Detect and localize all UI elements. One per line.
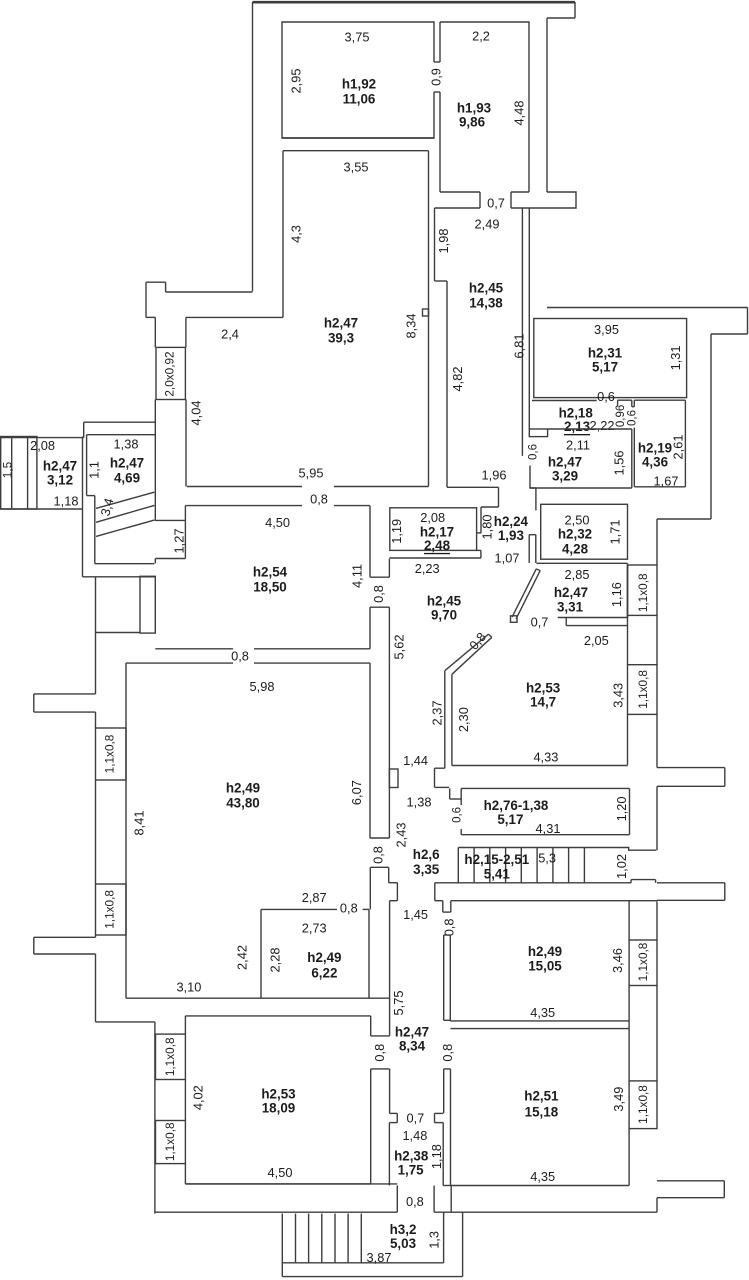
svg-text:1,1x0,8: 1,1x0,8 [103, 890, 117, 929]
svg-text:1,20: 1,20 [614, 796, 629, 821]
svg-text:h2,76-1,38: h2,76-1,38 [484, 798, 549, 813]
svg-text:0,8: 0,8 [310, 492, 328, 507]
svg-text:6,81: 6,81 [512, 334, 527, 359]
svg-text:h2,47: h2,47 [324, 316, 358, 331]
svg-text:3,46: 3,46 [610, 948, 625, 973]
svg-text:6,22: 6,22 [311, 965, 337, 980]
svg-text:2,22: 2,22 [590, 418, 615, 433]
svg-text:h2,47: h2,47 [43, 459, 77, 474]
svg-text:4,11: 4,11 [350, 564, 365, 588]
svg-text:3,31: 3,31 [557, 600, 584, 615]
svg-text:8,34: 8,34 [399, 1039, 426, 1054]
svg-text:1,45: 1,45 [403, 907, 428, 922]
svg-text:h2,49: h2,49 [528, 944, 562, 959]
svg-text:3,35: 3,35 [413, 862, 440, 877]
svg-text:h2,19: h2,19 [638, 441, 672, 456]
svg-text:15,05: 15,05 [528, 958, 562, 973]
svg-text:4,33: 4,33 [533, 750, 558, 765]
svg-text:2,48: 2,48 [424, 538, 451, 553]
svg-text:2,08: 2,08 [420, 510, 445, 525]
svg-text:1,38: 1,38 [114, 437, 139, 452]
svg-text:1,75: 1,75 [398, 1163, 425, 1178]
svg-text:3,49: 3,49 [611, 1087, 626, 1112]
svg-text:15,18: 15,18 [525, 1104, 559, 1119]
svg-text:1,56: 1,56 [612, 451, 627, 476]
svg-text:2,85: 2,85 [565, 567, 590, 582]
svg-text:0,8: 0,8 [370, 846, 385, 864]
svg-text:h2,53: h2,53 [261, 1087, 295, 1102]
svg-text:0,9: 0,9 [429, 68, 444, 86]
svg-text:h2,53: h2,53 [526, 681, 560, 696]
svg-text:h2,54: h2,54 [253, 565, 288, 580]
svg-text:5,75: 5,75 [391, 991, 406, 1016]
svg-text:0,6: 0,6 [451, 807, 463, 823]
svg-text:18,50: 18,50 [253, 580, 287, 595]
svg-text:1,1: 1,1 [87, 461, 102, 479]
svg-text:4,35: 4,35 [530, 1005, 555, 1020]
svg-text:h2,47: h2,47 [395, 1025, 429, 1040]
svg-text:43,80: 43,80 [226, 796, 260, 811]
svg-text:11,06: 11,06 [343, 92, 376, 107]
svg-text:5,62: 5,62 [392, 635, 407, 660]
svg-text:1,18: 1,18 [54, 494, 79, 509]
svg-text:2,50: 2,50 [565, 513, 590, 528]
svg-text:2,43: 2,43 [394, 823, 409, 848]
svg-text:5,17: 5,17 [497, 812, 523, 827]
svg-text:0,8: 0,8 [372, 1044, 387, 1062]
svg-text:1,07: 1,07 [495, 551, 520, 566]
svg-text:3,12: 3,12 [47, 473, 73, 488]
svg-text:2,0x0,92: 2,0x0,92 [163, 351, 177, 396]
svg-text:h2,24: h2,24 [494, 514, 529, 529]
svg-text:h2,47: h2,47 [110, 456, 144, 471]
svg-text:5,17: 5,17 [592, 360, 618, 375]
svg-text:0,7: 0,7 [407, 1111, 425, 1126]
svg-text:4,28: 4,28 [562, 542, 589, 557]
svg-text:8,41: 8,41 [132, 811, 147, 836]
svg-text:4,3: 4,3 [289, 225, 304, 243]
svg-text:18,09: 18,09 [262, 1101, 296, 1116]
svg-text:2,61: 2,61 [671, 435, 686, 460]
svg-text:1,1x0,8: 1,1x0,8 [636, 573, 650, 612]
svg-text:4,02: 4,02 [191, 1085, 206, 1110]
svg-text:39,3: 39,3 [328, 331, 354, 346]
svg-text:4,50: 4,50 [265, 515, 290, 530]
svg-text:0,8: 0,8 [441, 919, 456, 937]
svg-text:0,8: 0,8 [371, 585, 386, 603]
svg-text:1,1x0,8: 1,1x0,8 [636, 1085, 650, 1124]
svg-text:h2,15-2,51: h2,15-2,51 [464, 852, 529, 867]
svg-text:2,08: 2,08 [30, 438, 55, 453]
svg-text:3,55: 3,55 [344, 160, 369, 175]
svg-text:1,96: 1,96 [482, 468, 507, 483]
svg-text:1,1x0,8: 1,1x0,8 [163, 1122, 177, 1161]
svg-text:14,38: 14,38 [469, 296, 503, 311]
svg-text:h2,47: h2,47 [548, 455, 582, 470]
svg-text:3,95: 3,95 [594, 322, 619, 337]
svg-text:1,1x0,8: 1,1x0,8 [103, 734, 117, 773]
svg-text:2,28: 2,28 [268, 948, 283, 973]
svg-text:3,75: 3,75 [345, 30, 370, 45]
svg-text:3,43: 3,43 [610, 683, 625, 708]
svg-text:2,37: 2,37 [430, 701, 445, 726]
svg-text:h2,45: h2,45 [469, 281, 504, 296]
svg-text:6,07: 6,07 [349, 780, 364, 805]
svg-text:1,1x0,8: 1,1x0,8 [636, 942, 650, 981]
svg-text:4,50: 4,50 [268, 1165, 293, 1180]
svg-text:h2,32: h2,32 [558, 527, 592, 542]
svg-text:h2,51: h2,51 [524, 1088, 559, 1103]
svg-text:h1,92: h1,92 [342, 77, 376, 92]
svg-text:3,87: 3,87 [367, 1250, 392, 1265]
svg-text:h2,38: h2,38 [394, 1149, 429, 1164]
svg-text:1,27: 1,27 [172, 529, 187, 554]
svg-text:9,86: 9,86 [459, 115, 485, 130]
svg-text:h2,49: h2,49 [226, 781, 260, 796]
svg-text:1,67: 1,67 [654, 474, 679, 489]
svg-text:h2,47: h2,47 [554, 585, 588, 600]
svg-text:4,35: 4,35 [530, 1169, 555, 1184]
svg-text:2,95: 2,95 [289, 69, 304, 94]
svg-text:1,18: 1,18 [429, 1144, 444, 1169]
svg-text:0,8: 0,8 [231, 649, 249, 664]
svg-text:0,8: 0,8 [440, 1044, 455, 1062]
svg-text:1,16: 1,16 [609, 582, 624, 607]
svg-text:h2,6: h2,6 [413, 847, 440, 862]
svg-text:2,73: 2,73 [302, 921, 327, 936]
svg-text:0,8: 0,8 [406, 1194, 424, 1209]
svg-text:2,42: 2,42 [235, 945, 250, 970]
svg-text:1,5: 1,5 [0, 461, 14, 478]
svg-text:4,31: 4,31 [536, 821, 561, 836]
svg-text:2,30: 2,30 [456, 707, 471, 732]
svg-text:1,80: 1,80 [480, 515, 495, 540]
svg-text:5,03: 5,03 [390, 1236, 416, 1251]
svg-text:3,10: 3,10 [176, 980, 201, 995]
svg-text:4,04: 4,04 [189, 401, 204, 426]
svg-text:5,3: 5,3 [538, 851, 556, 866]
svg-text:h2,31: h2,31 [588, 346, 623, 361]
svg-text:1,19: 1,19 [389, 519, 404, 544]
svg-text:1,38: 1,38 [407, 795, 432, 810]
svg-text:9,70: 9,70 [431, 608, 457, 623]
svg-text:0,7: 0,7 [531, 614, 549, 629]
svg-text:4,69: 4,69 [114, 471, 140, 486]
svg-text:0,7: 0,7 [487, 196, 505, 211]
svg-text:0,8: 0,8 [340, 901, 358, 916]
svg-text:h2,49: h2,49 [307, 950, 341, 965]
svg-text:0,6: 0,6 [597, 389, 615, 404]
svg-text:2,05: 2,05 [584, 633, 609, 648]
svg-text:0,6: 0,6 [627, 410, 639, 426]
svg-text:3,29: 3,29 [552, 469, 578, 484]
svg-text:1,3: 1,3 [426, 1231, 441, 1249]
svg-text:h1,93: h1,93 [457, 101, 491, 116]
svg-text:2,4: 2,4 [221, 327, 239, 342]
svg-text:8,34: 8,34 [404, 314, 419, 339]
svg-text:4,48: 4,48 [512, 101, 527, 126]
svg-text:4,82: 4,82 [450, 367, 465, 392]
svg-text:2,49: 2,49 [475, 217, 500, 232]
svg-text:5,98: 5,98 [250, 679, 275, 694]
svg-text:1,71: 1,71 [608, 520, 623, 545]
svg-text:14,7: 14,7 [530, 695, 556, 710]
svg-text:2,11: 2,11 [566, 438, 590, 453]
svg-text:h3,2: h3,2 [390, 1222, 417, 1237]
svg-text:2,2: 2,2 [472, 29, 490, 44]
svg-text:2,13: 2,13 [564, 419, 590, 434]
svg-text:0,6: 0,6 [528, 444, 540, 460]
svg-text:2,87: 2,87 [302, 890, 327, 905]
svg-text:4,36: 4,36 [642, 455, 668, 470]
svg-text:1,44: 1,44 [403, 753, 428, 768]
svg-text:1,1x0,8: 1,1x0,8 [636, 670, 650, 709]
svg-text:1,02: 1,02 [614, 854, 629, 879]
svg-text:1,48: 1,48 [402, 1128, 427, 1143]
svg-text:1,93: 1,93 [498, 528, 524, 543]
svg-text:h2,45: h2,45 [427, 594, 462, 609]
svg-text:2,23: 2,23 [415, 561, 440, 576]
svg-text:5,41: 5,41 [484, 866, 511, 881]
svg-text:5,95: 5,95 [299, 466, 324, 481]
svg-text:1,1x0,8: 1,1x0,8 [163, 1037, 177, 1076]
svg-text:1,98: 1,98 [436, 229, 451, 254]
svg-text:0,96: 0,96 [615, 405, 627, 427]
svg-text:1,31: 1,31 [668, 345, 683, 370]
